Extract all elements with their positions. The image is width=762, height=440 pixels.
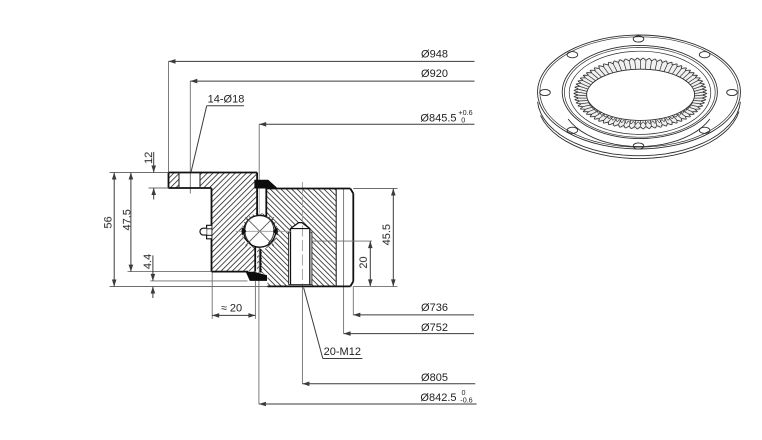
svg-text:-0.6: -0.6	[460, 396, 472, 405]
svg-text:Ø842.5: Ø842.5	[420, 392, 456, 404]
svg-text:45.5: 45.5	[381, 224, 393, 245]
svg-text:Ø805: Ø805	[421, 372, 448, 384]
svg-text:Ø736: Ø736	[421, 302, 448, 314]
svg-text:47.5: 47.5	[121, 209, 133, 230]
svg-text:12: 12	[143, 152, 155, 164]
svg-text:14-Ø18: 14-Ø18	[208, 93, 245, 105]
svg-text:20: 20	[358, 256, 370, 268]
svg-text:Ø845.5: Ø845.5	[420, 112, 456, 124]
svg-text:Ø948: Ø948	[421, 48, 448, 60]
svg-text:4.4: 4.4	[142, 254, 154, 269]
svg-text:Ø920: Ø920	[421, 68, 448, 80]
svg-text:0: 0	[461, 115, 465, 124]
svg-text:≈ 20: ≈ 20	[221, 302, 242, 314]
svg-text:Ø752: Ø752	[421, 322, 448, 334]
svg-text:20-M12: 20-M12	[324, 346, 361, 358]
svg-text:56: 56	[103, 216, 115, 228]
